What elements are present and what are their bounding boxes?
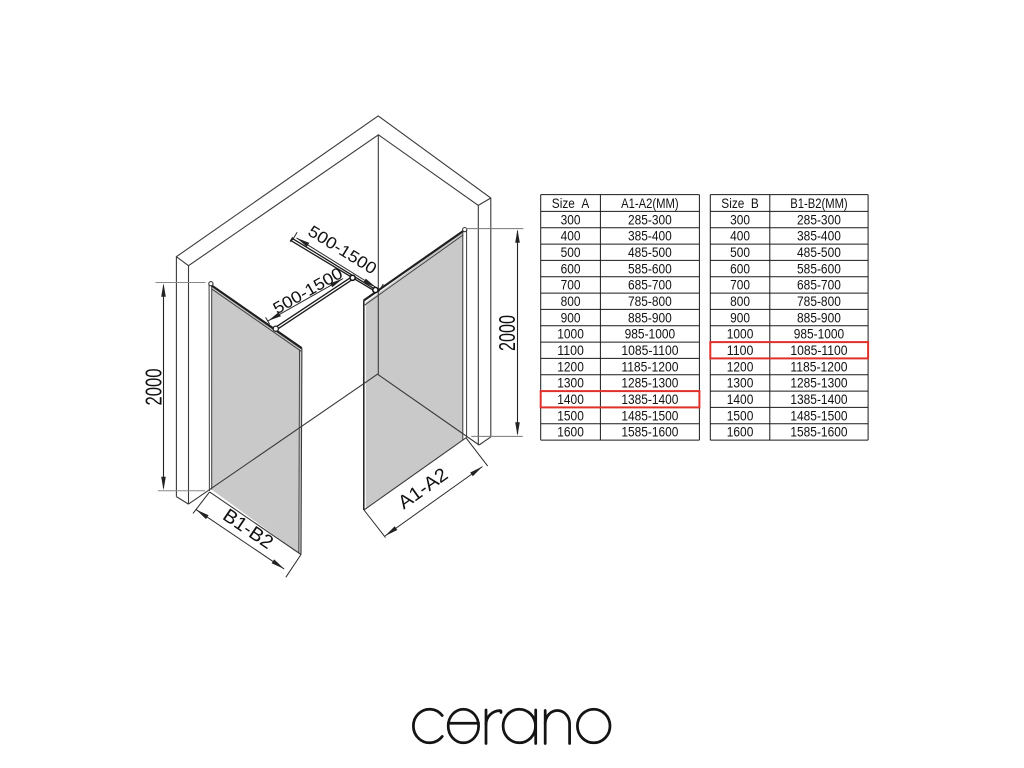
svg-text:1185-1200: 1185-1200 <box>621 359 678 374</box>
svg-text:485-500: 485-500 <box>797 245 841 260</box>
svg-text:1285-1300: 1285-1300 <box>621 376 678 391</box>
svg-text:1500: 1500 <box>557 408 584 423</box>
svg-text:885-900: 885-900 <box>797 310 841 325</box>
svg-text:685-700: 685-700 <box>628 278 672 293</box>
svg-text:800: 800 <box>730 294 750 309</box>
svg-text:1000: 1000 <box>727 327 754 342</box>
svg-text:985-1000: 985-1000 <box>625 327 676 342</box>
svg-text:1200: 1200 <box>557 359 584 374</box>
svg-text:400: 400 <box>730 229 750 244</box>
svg-text:800: 800 <box>561 294 581 309</box>
svg-text:1085-1100: 1085-1100 <box>621 343 678 358</box>
svg-text:1285-1300: 1285-1300 <box>790 376 847 391</box>
svg-text:1485-1500: 1485-1500 <box>790 408 847 423</box>
svg-text:700: 700 <box>561 278 581 293</box>
svg-text:1300: 1300 <box>557 376 584 391</box>
svg-text:585-600: 585-600 <box>628 261 672 276</box>
svg-text:1100: 1100 <box>557 343 584 358</box>
svg-text:500: 500 <box>561 245 581 260</box>
svg-text:385-400: 385-400 <box>628 229 672 244</box>
svg-text:885-900: 885-900 <box>628 310 672 325</box>
svg-text:300: 300 <box>730 212 750 227</box>
svg-text:1185-1200: 1185-1200 <box>790 359 847 374</box>
svg-text:385-400: 385-400 <box>797 229 841 244</box>
svg-text:785-800: 785-800 <box>797 294 841 309</box>
svg-text:600: 600 <box>730 261 750 276</box>
svg-text:2000: 2000 <box>141 369 167 406</box>
svg-text:1085-1100: 1085-1100 <box>790 343 847 358</box>
svg-text:Size B: Size B <box>721 196 759 211</box>
svg-text:900: 900 <box>561 310 581 325</box>
svg-text:1485-1500: 1485-1500 <box>621 408 678 423</box>
svg-text:485-500: 485-500 <box>628 245 672 260</box>
svg-text:1000: 1000 <box>557 327 584 342</box>
svg-text:1300: 1300 <box>727 376 754 391</box>
svg-text:585-600: 585-600 <box>797 261 841 276</box>
svg-text:900: 900 <box>730 310 750 325</box>
svg-text:285-300: 285-300 <box>797 212 841 227</box>
svg-text:1385-1400: 1385-1400 <box>790 392 847 407</box>
svg-text:1600: 1600 <box>727 425 754 440</box>
svg-text:1585-1600: 1585-1600 <box>621 425 678 440</box>
svg-text:700: 700 <box>730 278 750 293</box>
svg-text:1200: 1200 <box>727 359 754 374</box>
svg-text:A1-A2(MM): A1-A2(MM) <box>621 196 679 211</box>
svg-text:985-1000: 985-1000 <box>794 327 845 342</box>
svg-text:Size A: Size A <box>552 196 590 211</box>
svg-text:1400: 1400 <box>727 392 754 407</box>
svg-text:1400: 1400 <box>557 392 584 407</box>
svg-text:2000: 2000 <box>494 315 520 351</box>
svg-text:B1-B2(MM): B1-B2(MM) <box>790 196 848 211</box>
svg-text:1100: 1100 <box>727 343 754 358</box>
svg-text:285-300: 285-300 <box>628 212 672 227</box>
svg-text:1500: 1500 <box>727 408 754 423</box>
svg-text:500: 500 <box>730 245 750 260</box>
svg-text:1585-1600: 1585-1600 <box>790 425 847 440</box>
svg-text:685-700: 685-700 <box>797 278 841 293</box>
svg-text:1385-1400: 1385-1400 <box>621 392 678 407</box>
svg-text:600: 600 <box>561 261 581 276</box>
svg-text:300: 300 <box>561 212 581 227</box>
svg-text:400: 400 <box>561 229 581 244</box>
svg-text:785-800: 785-800 <box>628 294 672 309</box>
svg-text:1600: 1600 <box>557 425 584 440</box>
